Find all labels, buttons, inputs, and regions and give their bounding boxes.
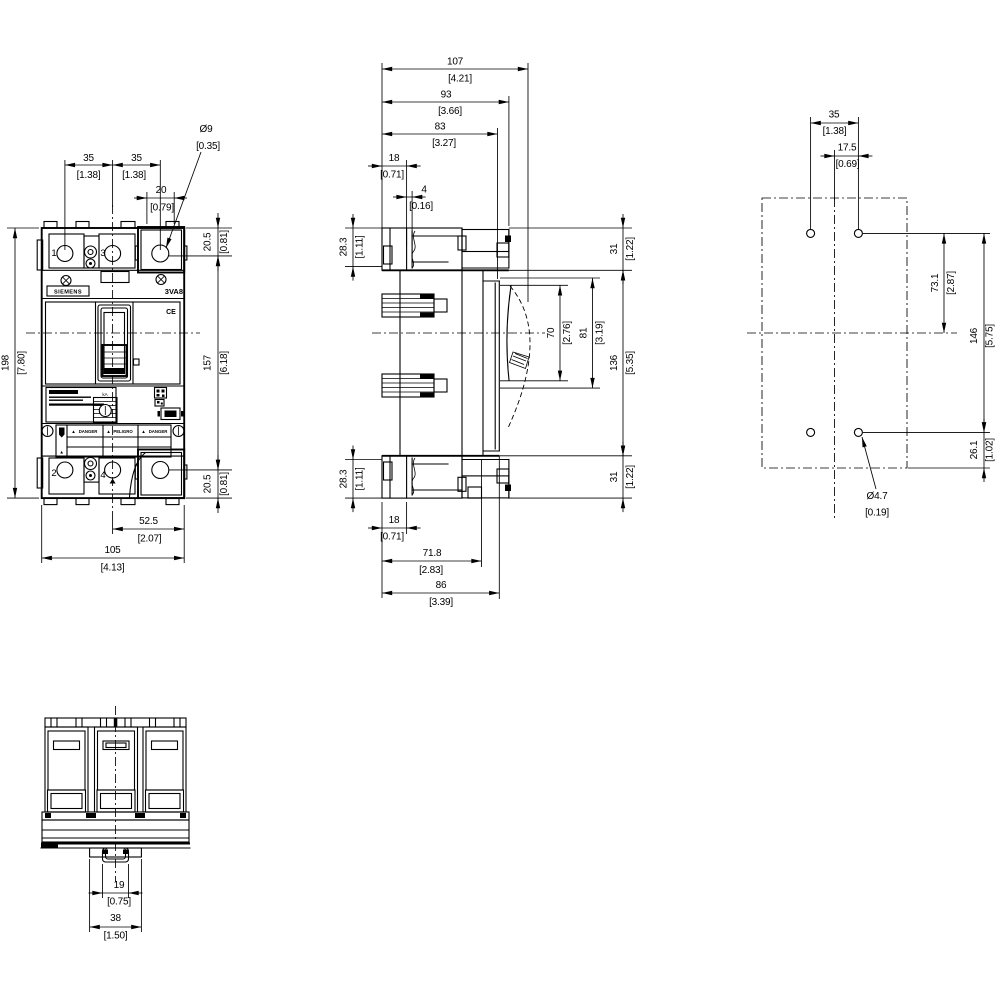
- svg-text:[4.13]: [4.13]: [101, 563, 125, 574]
- terminal-1-label: 1: [51, 248, 56, 259]
- svg-text:[0.35]: [0.35]: [196, 141, 220, 152]
- svg-text:107: 107: [447, 57, 464, 68]
- svg-text:[0.71]: [0.71]: [380, 170, 404, 181]
- svg-text:26.1: 26.1: [969, 440, 980, 459]
- svg-text:[3.27]: [3.27]: [432, 138, 456, 149]
- svg-text:[4.21]: [4.21]: [448, 74, 472, 85]
- svg-text:86: 86: [436, 580, 447, 591]
- svg-text:[2.83]: [2.83]: [419, 565, 443, 576]
- svg-text:35: 35: [83, 153, 94, 164]
- svg-text:19: 19: [114, 880, 125, 891]
- svg-text:[5.75]: [5.75]: [985, 324, 996, 348]
- svg-text:70: 70: [546, 327, 557, 338]
- svg-text:4: 4: [421, 185, 427, 196]
- svg-text:38: 38: [110, 913, 121, 924]
- svg-text:[1.38]: [1.38]: [823, 126, 847, 137]
- svg-text:[3.39]: [3.39]: [429, 597, 453, 608]
- svg-text:[1.50]: [1.50]: [104, 931, 128, 942]
- svg-text:136: 136: [609, 354, 620, 371]
- svg-text:20: 20: [156, 185, 167, 196]
- svg-text:[0.16]: [0.16]: [409, 201, 433, 212]
- svg-text:28.3: 28.3: [339, 469, 350, 488]
- svg-text:31: 31: [609, 471, 620, 482]
- svg-text:[2.76]: [2.76]: [562, 321, 573, 345]
- svg-text:Ø9: Ø9: [200, 124, 214, 135]
- svg-text:105: 105: [104, 545, 121, 556]
- warning-triangle-icon: ▲: [141, 429, 146, 434]
- terminal-2-label: 2: [51, 468, 56, 479]
- svg-text:[1.11]: [1.11]: [355, 235, 366, 258]
- svg-text:Ø4.7: Ø4.7: [867, 491, 889, 502]
- svg-text:[0.79]: [0.79]: [150, 203, 174, 214]
- svg-text:198: 198: [1, 354, 12, 371]
- warning-triangle-icon: ▲: [71, 429, 76, 434]
- svg-text:52.5: 52.5: [139, 516, 158, 527]
- svg-text:93: 93: [441, 90, 452, 101]
- warning-label-peligro: PELIGRO: [113, 429, 133, 434]
- warning-triangle-icon: ▲: [106, 429, 111, 434]
- svg-text:[2.07]: [2.07]: [138, 534, 162, 545]
- svg-text:73.1: 73.1: [930, 273, 941, 292]
- svg-text:35: 35: [829, 110, 840, 121]
- svg-text:83: 83: [435, 122, 446, 133]
- svg-text:35: 35: [131, 153, 142, 164]
- svg-text:[1.22]: [1.22]: [625, 465, 636, 489]
- warning-label-danger-2: DANGER: [149, 429, 169, 434]
- svg-text:81: 81: [579, 327, 590, 338]
- svg-text:[0.81]: [0.81]: [219, 472, 230, 496]
- svg-text:[5.35]: [5.35]: [625, 351, 636, 375]
- svg-text:[1.38]: [1.38]: [122, 170, 146, 181]
- svg-text:[0.19]: [0.19]: [865, 508, 889, 519]
- svg-text:71.8: 71.8: [423, 548, 442, 559]
- svg-text:17.5: 17.5: [838, 143, 857, 154]
- svg-text:[1.22]: [1.22]: [625, 237, 636, 261]
- svg-text:20.5: 20.5: [203, 232, 214, 251]
- model-label: 3VA8: [165, 287, 183, 296]
- svg-text:[1.02]: [1.02]: [985, 438, 996, 462]
- svg-text:28.3: 28.3: [339, 237, 350, 256]
- svg-text:[0.75]: [0.75]: [107, 897, 131, 908]
- svg-text:[0.71]: [0.71]: [380, 532, 404, 543]
- svg-text:[0.69]: [0.69]: [836, 159, 860, 170]
- svg-text:[7.80]: [7.80]: [17, 351, 28, 375]
- svg-text:[6.18]: [6.18]: [219, 351, 230, 375]
- terminal-4-label: 4: [100, 470, 105, 481]
- warning-triangle-icon: ▲: [59, 450, 64, 455]
- svg-text:[0.81]: [0.81]: [219, 230, 230, 254]
- svg-text:18: 18: [389, 515, 400, 526]
- svg-text:[3.66]: [3.66]: [438, 106, 462, 117]
- svg-text:[3.19]: [3.19]: [595, 321, 606, 345]
- svg-text:[1.11]: [1.11]: [355, 467, 366, 490]
- svg-text:146: 146: [969, 327, 980, 344]
- warning-label-danger: DANGER: [79, 429, 99, 434]
- svg-text:20.5: 20.5: [203, 474, 214, 493]
- svg-text:157: 157: [203, 354, 214, 371]
- svg-text:31: 31: [609, 243, 620, 254]
- dimensional-drawing: 1 3 SIEMENS 3VA8: [0, 0, 1000, 1000]
- ce-mark: CE: [166, 309, 176, 316]
- svg-text:[2.87]: [2.87]: [946, 271, 957, 295]
- dial-unit-label: kA: [102, 392, 108, 397]
- svg-text:18: 18: [389, 153, 400, 164]
- terminal-3-label: 3: [100, 248, 105, 259]
- brand-label: SIEMENS: [54, 290, 82, 296]
- svg-text:[1.38]: [1.38]: [77, 170, 101, 181]
